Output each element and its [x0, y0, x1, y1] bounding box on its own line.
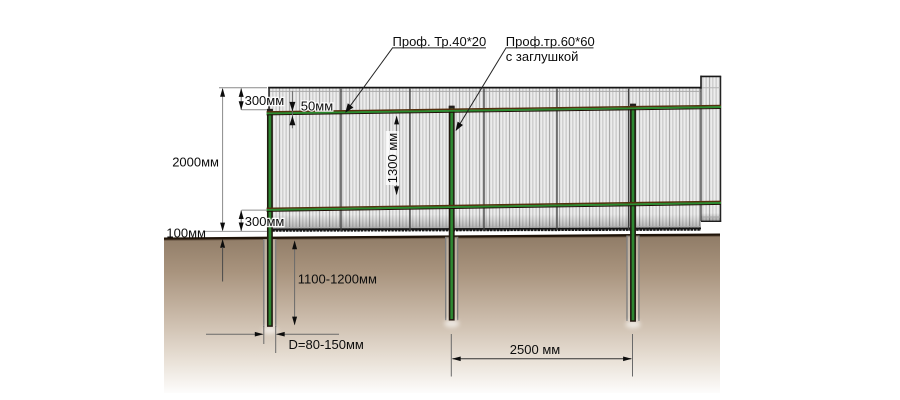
svg-text:с заглушкой: с заглушкой — [506, 49, 579, 64]
svg-text:Проф.тр.60*60: Проф.тр.60*60 — [506, 34, 595, 49]
svg-text:Проф. Тр.40*20: Проф. Тр.40*20 — [393, 34, 487, 49]
svg-text:300мм: 300мм — [245, 214, 285, 229]
svg-text:2500 мм: 2500 мм — [510, 342, 560, 357]
svg-text:50мм: 50мм — [301, 98, 333, 113]
svg-text:300мм: 300мм — [245, 93, 285, 108]
svg-text:2000мм: 2000мм — [172, 155, 219, 170]
svg-text:1300 мм: 1300 мм — [385, 133, 400, 183]
svg-text:1100-1200мм: 1100-1200мм — [298, 271, 377, 286]
svg-text:D=80-150мм: D=80-150мм — [289, 337, 364, 352]
svg-text:100мм: 100мм — [166, 226, 206, 241]
